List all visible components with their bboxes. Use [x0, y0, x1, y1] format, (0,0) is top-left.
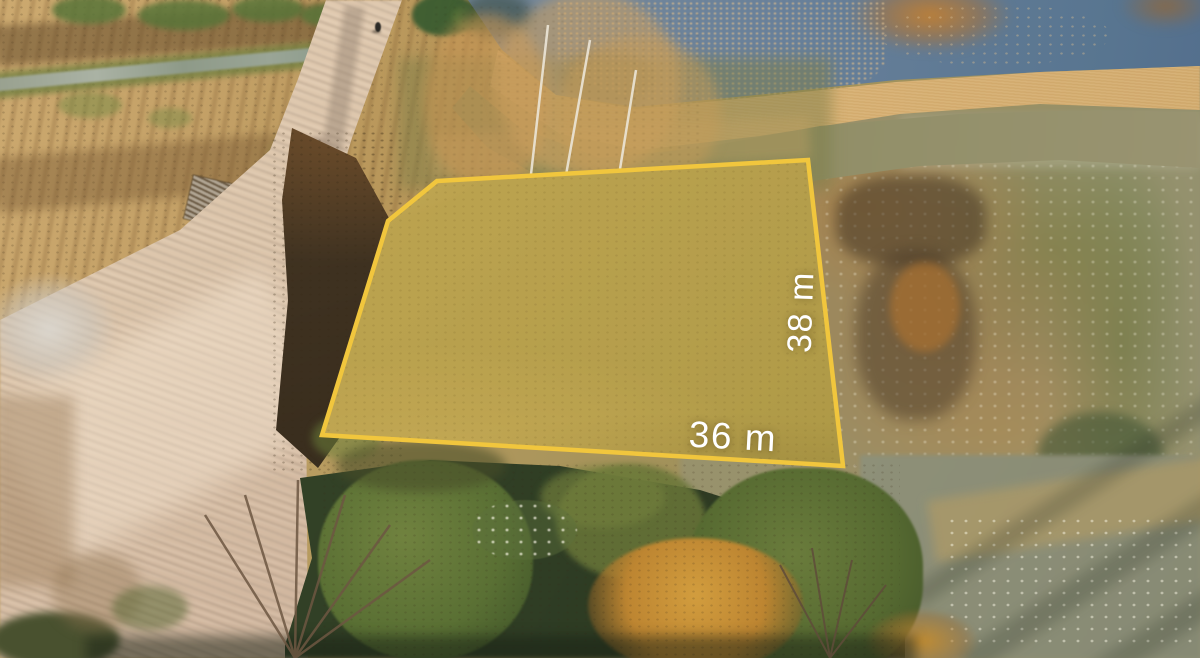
brush-patch [0, 396, 74, 586]
green-bush [112, 586, 188, 630]
orange-bush [890, 262, 960, 352]
tree-shadow [86, 636, 916, 658]
green-bush [148, 108, 192, 128]
aerial-photo: 38 m 36 m [0, 0, 1200, 658]
dimension-label-right: 38 m [779, 246, 824, 377]
figure-shadow [372, 30, 381, 33]
reeds-in-water [880, 4, 1110, 66]
green-bush [138, 0, 230, 30]
dark-grass [336, 440, 506, 492]
dimension-label-bottom: 36 m [659, 410, 807, 464]
flower-patch [472, 500, 577, 560]
green-bush [58, 92, 122, 118]
